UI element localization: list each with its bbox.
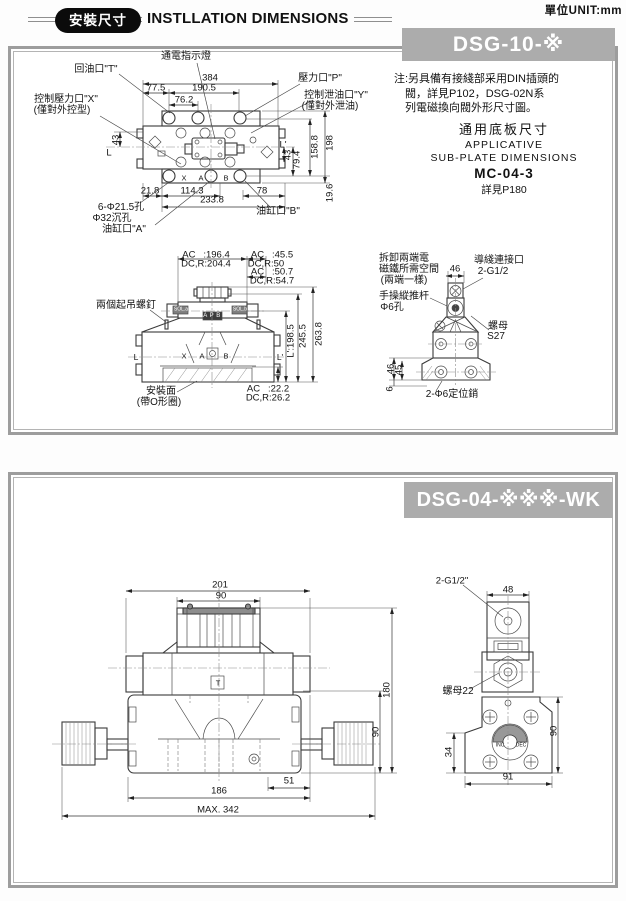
- technical-drawings: [0, 0, 626, 901]
- drawing-dsg04-side-view: [446, 585, 563, 788]
- catalog-page: 單位UNIT:mm 安裝尺寸 INSTLLATION DIMENSIONS DS…: [0, 0, 626, 901]
- drawing-dsg10-top-view: [100, 63, 330, 225]
- drawing-dsg04-front-view: [52, 588, 397, 820]
- drawing-dsg10-side-view: [389, 271, 496, 391]
- drawing-dsg10-front-view: [128, 256, 318, 392]
